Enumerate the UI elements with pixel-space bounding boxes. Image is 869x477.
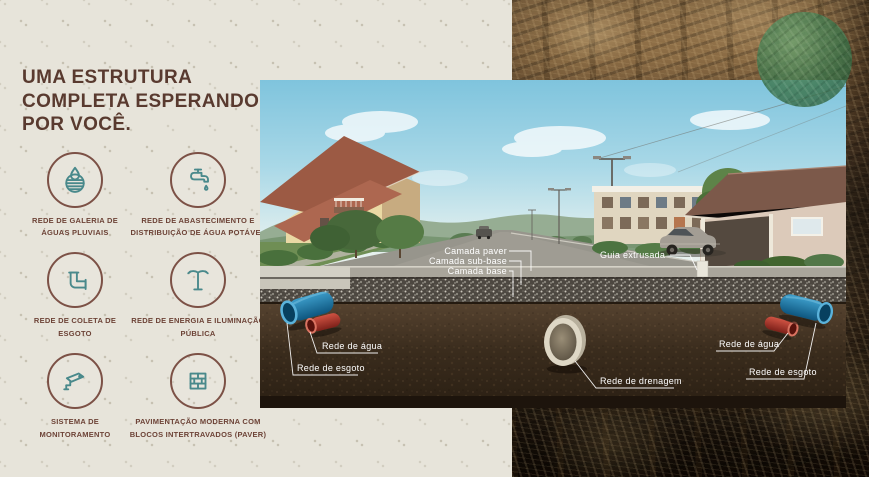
feature-item-paving: PAVIMENTAÇÃO MODERNA COM BLOCOS INTERTRA… bbox=[128, 353, 268, 441]
faucet-icon bbox=[170, 152, 226, 208]
label-rede-esgoto-left: Rede de esgoto bbox=[297, 363, 365, 373]
title-line-2: COMPLETA ESPERANDO bbox=[22, 90, 262, 114]
feature-label: REDE DE COLETA DE ESGOTO bbox=[22, 315, 128, 340]
feature-item-energy: REDE DE ENERGIA E ILUMINAÇÃO PÚBLICA bbox=[128, 252, 268, 340]
cctv-camera-icon bbox=[47, 353, 103, 409]
street-light-icon bbox=[170, 252, 226, 308]
feature-item-rain-gallery: REDE DE GALERIA DE ÁGUAS PLUVIAIS bbox=[22, 152, 128, 240]
paver-bricks-icon bbox=[170, 353, 226, 409]
feature-label: REDE DE ABASTECIMENTO E DISTRIBUIÇÃO DE … bbox=[128, 215, 268, 240]
title-line-1: UMA ESTRUTURA bbox=[22, 66, 262, 90]
label-camada-sub-base: Camada sub-base bbox=[429, 256, 507, 266]
feature-list: REDE DE GALERIA DE ÁGUAS PLUVIAIS REDE D… bbox=[22, 152, 262, 441]
label-rede-esgoto-right: Rede de esgoto bbox=[749, 367, 817, 377]
feature-item-water-supply: REDE DE ABASTECIMENTO E DISTRIBUIÇÃO DE … bbox=[128, 152, 268, 240]
feature-label: REDE DE ENERGIA E ILUMINAÇÃO PÚBLICA bbox=[128, 315, 268, 340]
label-guia-extrusada: Guia extrusada bbox=[600, 250, 665, 260]
page-title: UMA ESTRUTURA COMPLETA ESPERANDO POR VOC… bbox=[22, 66, 262, 137]
street-cross-section-image: Camada paver Camada sub-base Camada base… bbox=[260, 80, 846, 408]
feature-label: REDE DE GALERIA DE ÁGUAS PLUVIAIS bbox=[22, 215, 128, 240]
feature-item-monitoring: SISTEMA DE MONITORAMENTO bbox=[22, 353, 128, 441]
label-rede-agua-left: Rede de água bbox=[322, 341, 382, 351]
label-camada-paver: Camada paver bbox=[444, 246, 507, 256]
feature-label: PAVIMENTAÇÃO MODERNA COM BLOCOS INTERTRA… bbox=[128, 416, 268, 441]
label-rede-drenagem: Rede de drenagem bbox=[600, 376, 682, 386]
label-camada-base: Camada base bbox=[448, 266, 507, 276]
feature-label: SISTEMA DE MONITORAMENTO bbox=[22, 416, 128, 441]
storm-drain-icon bbox=[47, 152, 103, 208]
feature-item-sewage: REDE DE COLETA DE ESGOTO bbox=[22, 252, 128, 340]
label-rede-agua-right: Rede de água bbox=[719, 339, 779, 349]
sewer-pipe-icon bbox=[47, 252, 103, 308]
logo-badge bbox=[757, 12, 852, 107]
title-line-3: POR VOCÊ. bbox=[22, 113, 262, 137]
gravel-layer bbox=[260, 277, 846, 304]
sidebar: UMA ESTRUTURA COMPLETA ESPERANDO POR VOC… bbox=[22, 66, 262, 441]
